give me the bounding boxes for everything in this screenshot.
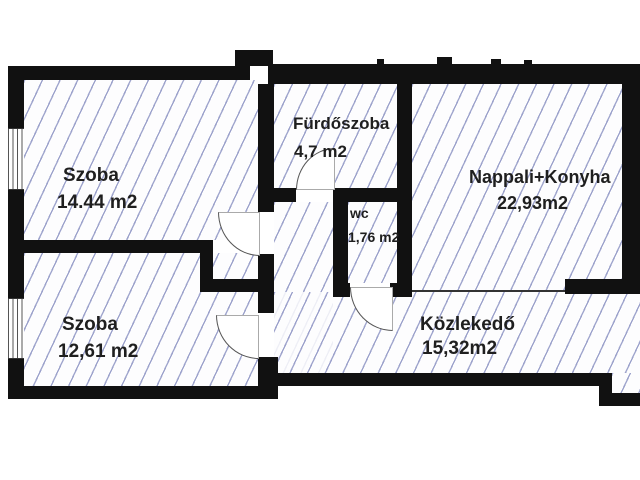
wall-tick-1: [377, 59, 384, 65]
wall-furdoszoba-bottom: [258, 188, 296, 202]
label-kozlekedo-name: Közlekedő: [420, 315, 515, 334]
wall-tick-4: [524, 60, 532, 65]
wall-nappali-bottom: [565, 279, 640, 294]
wall-top-left: [8, 66, 250, 80]
label-furdoszoba-area: 4,7 m2: [294, 143, 347, 160]
label-szoba-2-name: Szoba: [62, 315, 118, 334]
wall-kozlekedo-bottom-right: [599, 393, 640, 406]
label-szoba-1-area: 14.44 m2: [57, 193, 137, 212]
window-szoba-2: [8, 298, 24, 359]
wall-wc-left: [333, 188, 348, 297]
wall-divider-szoba: [8, 240, 213, 253]
room-floor-furdoszoba: [274, 84, 397, 188]
wall-nappali-left: [397, 64, 412, 297]
wall-kozlekedo-bottom: [258, 373, 612, 386]
label-szoba-2-area: 12,61 m2: [58, 342, 138, 361]
wall-top-right: [268, 64, 640, 84]
label-wc-name: wc: [350, 206, 369, 220]
label-nappali-name: Nappali+Konyha: [469, 168, 611, 186]
room-floor-kozlekedo-step: [612, 373, 640, 394]
window-szoba-1: [8, 128, 24, 190]
threshold-nappali-kozlekedo: [412, 290, 565, 292]
label-wc-area: 1,76 m2: [348, 230, 399, 244]
wall-outer-right: [622, 64, 640, 294]
label-szoba-1-name: Szoba: [63, 166, 119, 185]
wall-hall-left-mid: [258, 254, 274, 313]
floor-plan: Szoba 14.44 m2 Szoba 12,61 m2 Fürdőszoba…: [0, 0, 640, 480]
label-kozlekedo-area: 15,32m2: [422, 339, 497, 358]
door-szoba-1: [218, 212, 260, 256]
wall-tick-3: [491, 59, 501, 65]
wall-tick-2: [437, 57, 452, 65]
room-floor-nappali-konyha: [412, 84, 622, 291]
wall-wc-bottom-left: [333, 283, 350, 297]
label-nappali-area: 22,93m2: [497, 194, 568, 212]
label-furdoszoba-name: Fürdőszoba: [293, 115, 389, 132]
wall-szoba2-bottom: [8, 386, 274, 399]
